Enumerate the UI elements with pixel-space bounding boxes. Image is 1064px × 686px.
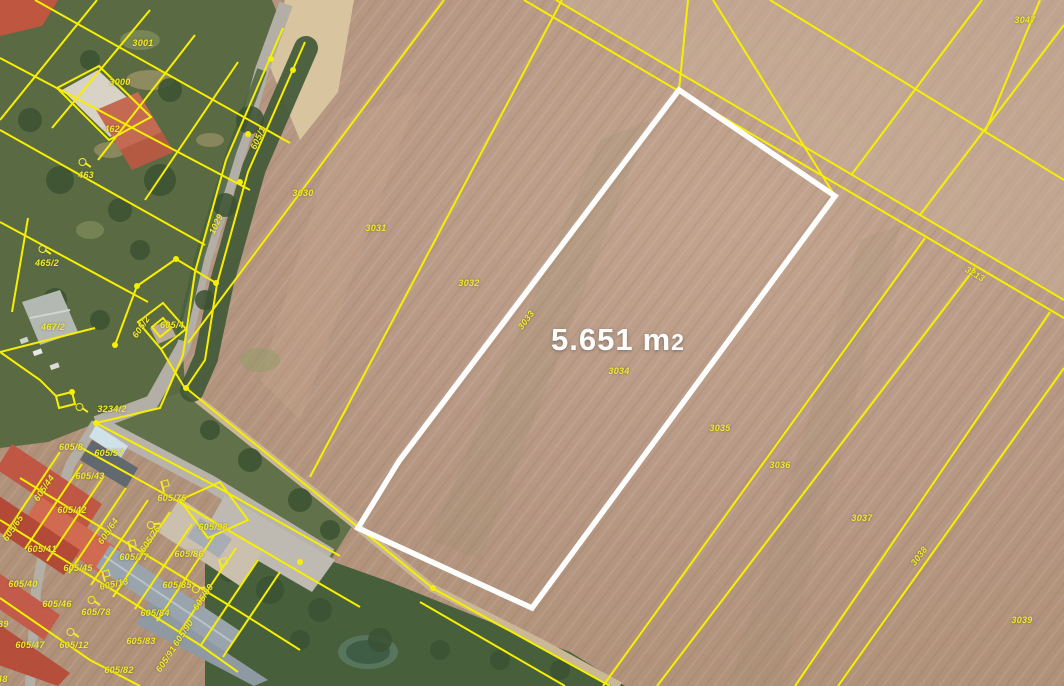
parcel-label: 605/45 bbox=[63, 563, 92, 573]
parcel-label: 3001 bbox=[132, 38, 153, 48]
parcel-label: 605/39 bbox=[0, 619, 9, 629]
parcel-label: 462 bbox=[104, 124, 120, 134]
parcel-label: 605/48 bbox=[0, 674, 8, 684]
parcel-label: 605/84 bbox=[140, 608, 169, 618]
parcel-area-value: 5.651 bbox=[551, 322, 634, 357]
cadastral-map[interactable]: 30013000462463465/2467/2605/4605/2605/11… bbox=[0, 0, 1064, 686]
parcel-label: 605/12 bbox=[59, 640, 88, 650]
parcel-label: 3036 bbox=[769, 460, 790, 470]
parcel-label: 3047 bbox=[1014, 15, 1035, 25]
hook-icon bbox=[67, 628, 80, 640]
parcel-label: 605/85 bbox=[162, 580, 191, 590]
parcel-label: 3032 bbox=[458, 278, 479, 288]
parcel-label: 605/8 bbox=[59, 442, 83, 452]
hook-icon bbox=[76, 403, 89, 415]
hook-icon bbox=[39, 245, 52, 257]
parcel-label: 605/41 bbox=[27, 544, 56, 554]
parcel-label: 3039 bbox=[1011, 615, 1032, 625]
parcel-area-label: 5.651m2 bbox=[551, 322, 685, 358]
parcel-label: 605/43 bbox=[75, 471, 104, 481]
parcel-label: 605/83 bbox=[126, 636, 155, 646]
parcel-area-unit-digit: 2 bbox=[671, 329, 685, 355]
parcel-label: 605/86 bbox=[174, 549, 203, 559]
hook-icon bbox=[88, 596, 101, 608]
flag-icon bbox=[158, 480, 170, 493]
flag-icon bbox=[125, 540, 137, 553]
parcel-label: 3030 bbox=[292, 188, 313, 198]
parcel-area-unit: m bbox=[643, 322, 672, 357]
parcel-label: 3000 bbox=[109, 77, 130, 87]
parcel-label: 463 bbox=[78, 170, 94, 180]
parcel-label: 605/57 bbox=[94, 448, 123, 458]
flag-icon bbox=[216, 558, 228, 571]
parcel-label: 465/2 bbox=[35, 258, 59, 268]
parcel-label: 605/40 bbox=[8, 579, 37, 589]
parcel-label: 3035 bbox=[709, 423, 730, 433]
parcel-label: 467/2 bbox=[41, 322, 65, 332]
parcel-label: 605/82 bbox=[104, 665, 133, 675]
parcel-label: 605/4 bbox=[160, 320, 184, 330]
parcel-label: 605/77 bbox=[119, 552, 148, 562]
parcel-label: 605/98 bbox=[198, 522, 227, 532]
village-parcel-lines bbox=[0, 0, 610, 686]
flag-icon bbox=[99, 570, 111, 583]
parcel-label: 3031 bbox=[365, 223, 386, 233]
parcel-label: 3034 bbox=[608, 366, 629, 376]
parcel-label: 605/46 bbox=[42, 599, 71, 609]
hook-icon bbox=[79, 158, 92, 170]
parcel-label: 3234/2 bbox=[97, 404, 126, 414]
parcel-label: 605/75 bbox=[157, 493, 186, 503]
parcel-label: 605/78 bbox=[81, 607, 110, 617]
parcel-label: 605/47 bbox=[15, 640, 44, 650]
parcel-label: 605/42 bbox=[57, 505, 86, 515]
parcel-label: 3037 bbox=[851, 513, 872, 523]
cadastral-lines-layer bbox=[0, 0, 1064, 686]
